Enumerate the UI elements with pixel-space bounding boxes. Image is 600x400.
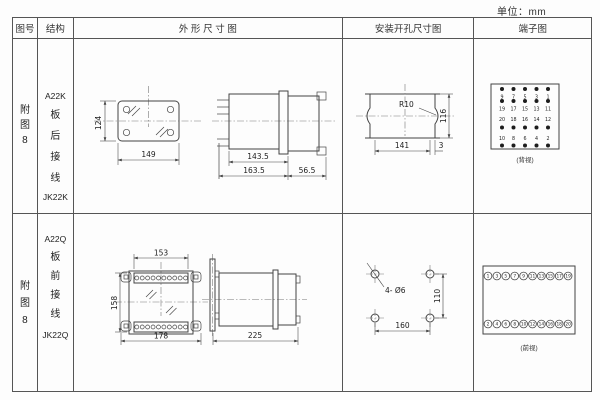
structure-text: A22Q 板 前 接 线 JK22Q bbox=[38, 214, 73, 340]
svg-text:10: 10 bbox=[499, 136, 505, 142]
spec-table: 图号 结构 外 形 尺 寸 图 安装开孔尺寸图 端子图 附 图 8 A22K 板… bbox=[12, 17, 592, 392]
fig-no-char: 附 bbox=[20, 278, 30, 295]
fig-no-cell-a22k: 附 图 8 bbox=[13, 39, 38, 213]
model-label: A22Q bbox=[44, 234, 66, 244]
svg-text:1: 1 bbox=[487, 274, 490, 280]
header-install: 安装开孔尺寸图 bbox=[343, 18, 475, 38]
rear-depth-dim: 56.5 bbox=[298, 166, 315, 175]
install-drawing-cell-a22q: 4- Ø6 110 160 bbox=[343, 214, 475, 392]
structure-char: 后 bbox=[50, 126, 60, 147]
hole-width-dim: 141 bbox=[395, 141, 410, 150]
svg-text:18: 18 bbox=[511, 117, 517, 123]
svg-text:3: 3 bbox=[496, 274, 499, 280]
side-view-a22k: 143.5 163.5 56.5 bbox=[212, 91, 336, 180]
svg-text:15: 15 bbox=[548, 274, 554, 280]
structure-char: 板 bbox=[50, 248, 60, 267]
structure-char: 线 bbox=[50, 168, 60, 189]
header-fig-no: 图号 bbox=[13, 18, 38, 38]
svg-text:12: 12 bbox=[530, 322, 536, 328]
structure-cell-a22q: A22Q 板 前 接 线 JK22Q bbox=[38, 214, 74, 392]
header-outline: 外 形 尺 寸 图 bbox=[74, 18, 343, 38]
terminal-drawing-cell-a22k: 9753119171513112018161412108642 (背视) bbox=[474, 39, 591, 213]
structure-char: 接 bbox=[50, 147, 60, 168]
svg-text:6: 6 bbox=[524, 136, 527, 142]
svg-text:20: 20 bbox=[499, 117, 505, 123]
outline-drawing-a22k: 124 149 bbox=[74, 39, 343, 213]
svg-text:13: 13 bbox=[534, 107, 540, 113]
outline-drawing-cell-a22k: 124 149 bbox=[74, 39, 343, 213]
fig-no-char: 图 bbox=[20, 295, 30, 312]
svg-text:11: 11 bbox=[545, 107, 551, 113]
svg-text:14: 14 bbox=[534, 117, 540, 123]
front-view-a22k: 124 149 bbox=[94, 86, 202, 165]
svg-text:8: 8 bbox=[512, 136, 515, 142]
fig-no-char: 8 bbox=[22, 312, 28, 329]
front-height-dim: 124 bbox=[94, 116, 103, 131]
terminal-grid-a22q: 1357911131517192468101214161820 bbox=[485, 272, 573, 328]
header-terminal: 端子图 bbox=[474, 18, 591, 38]
holes-count-dim: 4- Ø6 bbox=[385, 286, 406, 295]
install-drawing-cell-a22k: R10 116 141 3 bbox=[343, 39, 475, 213]
fig-no-text: 附 图 8 bbox=[13, 214, 37, 329]
table-header-row: 图号 结构 外 形 尺 寸 图 安装开孔尺寸图 端子图 bbox=[13, 18, 591, 39]
edge-offset-dim: 3 bbox=[438, 141, 443, 150]
svg-text:7: 7 bbox=[514, 274, 517, 280]
hatch-mark bbox=[128, 106, 140, 116]
front-view-a22q: 153 158 178 bbox=[110, 249, 208, 346]
code-label: JK22K bbox=[43, 192, 68, 202]
radius-dim: R10 bbox=[399, 100, 414, 109]
terminal-diagram-a22q: 1357911131517192468101214161820 (前视) bbox=[474, 214, 590, 392]
structure-text: A22K 板 后 接 线 JK22K bbox=[38, 39, 73, 202]
svg-text:10: 10 bbox=[521, 322, 527, 328]
svg-text:13: 13 bbox=[539, 274, 545, 280]
terminal-caption: (前视) bbox=[521, 343, 538, 352]
svg-text:8: 8 bbox=[514, 322, 517, 328]
front-width-dim: 178 bbox=[154, 332, 169, 341]
table-row-a22q: 附 图 8 A22Q 板 前 接 线 JK22Q bbox=[13, 214, 591, 392]
structure-char: 前 bbox=[50, 267, 60, 286]
install-drawing-a22q: 4- Ø6 110 160 bbox=[343, 214, 474, 392]
front-height-dim: 158 bbox=[110, 296, 119, 311]
header-structure: 结构 bbox=[38, 18, 74, 38]
svg-text:17: 17 bbox=[557, 274, 563, 280]
svg-text:5: 5 bbox=[505, 274, 508, 280]
hatch-mark bbox=[166, 306, 177, 315]
unit-label: 单位：mm bbox=[497, 3, 546, 18]
svg-text:11: 11 bbox=[530, 274, 536, 280]
model-label: A22K bbox=[45, 91, 66, 101]
hatch-mark bbox=[156, 127, 168, 137]
terminal-drawing-cell-a22q: 1357911131517192468101214161820 (前视) bbox=[474, 214, 591, 392]
fig-no-cell-a22q: 附 图 8 bbox=[13, 214, 38, 392]
svg-text:17: 17 bbox=[511, 107, 517, 113]
structure-char: 板 bbox=[50, 105, 60, 126]
strip-width-dim: 153 bbox=[154, 249, 169, 258]
svg-text:18: 18 bbox=[557, 322, 563, 328]
fig-no-char: 图 bbox=[20, 118, 30, 133]
hole-height-dim: 110 bbox=[433, 289, 442, 304]
svg-text:2: 2 bbox=[487, 322, 490, 328]
install-drawing-a22k: R10 116 141 3 bbox=[343, 39, 474, 213]
svg-text:20: 20 bbox=[566, 322, 572, 328]
structure-char: 接 bbox=[50, 286, 60, 305]
structure-cell-a22k: A22K 板 后 接 线 JK22K bbox=[38, 39, 74, 213]
structure-char: 线 bbox=[50, 305, 60, 324]
depth-outer-dim: 163.5 bbox=[243, 166, 265, 175]
hatch-mark bbox=[146, 290, 157, 299]
front-width-dim: 149 bbox=[141, 150, 156, 159]
svg-text:14: 14 bbox=[539, 322, 545, 328]
terminal-caption: (背视) bbox=[517, 155, 534, 164]
fig-no-text: 附 图 8 bbox=[13, 39, 37, 148]
strip-circles-bottom bbox=[135, 325, 188, 329]
svg-text:16: 16 bbox=[548, 322, 554, 328]
svg-text:2: 2 bbox=[547, 136, 550, 142]
fig-no-char: 附 bbox=[20, 103, 30, 118]
mounting-holes bbox=[366, 265, 439, 327]
depth-inner-dim: 143.5 bbox=[247, 152, 269, 161]
svg-text:12: 12 bbox=[545, 117, 551, 123]
table-row-a22k: 附 图 8 A22K 板 后 接 线 JK22K bbox=[13, 39, 591, 214]
code-label: JK22Q bbox=[42, 330, 68, 340]
outline-drawing-a22q: 153 158 178 bbox=[74, 214, 343, 392]
fig-no-char: 8 bbox=[22, 133, 28, 148]
svg-text:19: 19 bbox=[499, 107, 505, 113]
svg-text:4: 4 bbox=[496, 322, 499, 328]
outline-drawing-cell-a22q: 153 158 178 bbox=[74, 214, 343, 392]
svg-text:15: 15 bbox=[522, 107, 528, 113]
svg-text:9: 9 bbox=[523, 274, 526, 280]
side-view-a22q: 225 bbox=[202, 254, 307, 345]
hole-height-dim: 116 bbox=[439, 109, 448, 124]
terminal-grid-a22k: 9753119171513112018161412108642 bbox=[499, 87, 551, 148]
terminal-diagram-a22k: 9753119171513112018161412108642 (背视) bbox=[474, 39, 590, 213]
svg-text:16: 16 bbox=[522, 117, 528, 123]
svg-text:6: 6 bbox=[505, 322, 508, 328]
depth-dim: 225 bbox=[248, 331, 263, 340]
svg-text:4: 4 bbox=[535, 136, 538, 142]
hole-width-dim: 160 bbox=[395, 321, 410, 330]
svg-text:19: 19 bbox=[566, 274, 572, 280]
